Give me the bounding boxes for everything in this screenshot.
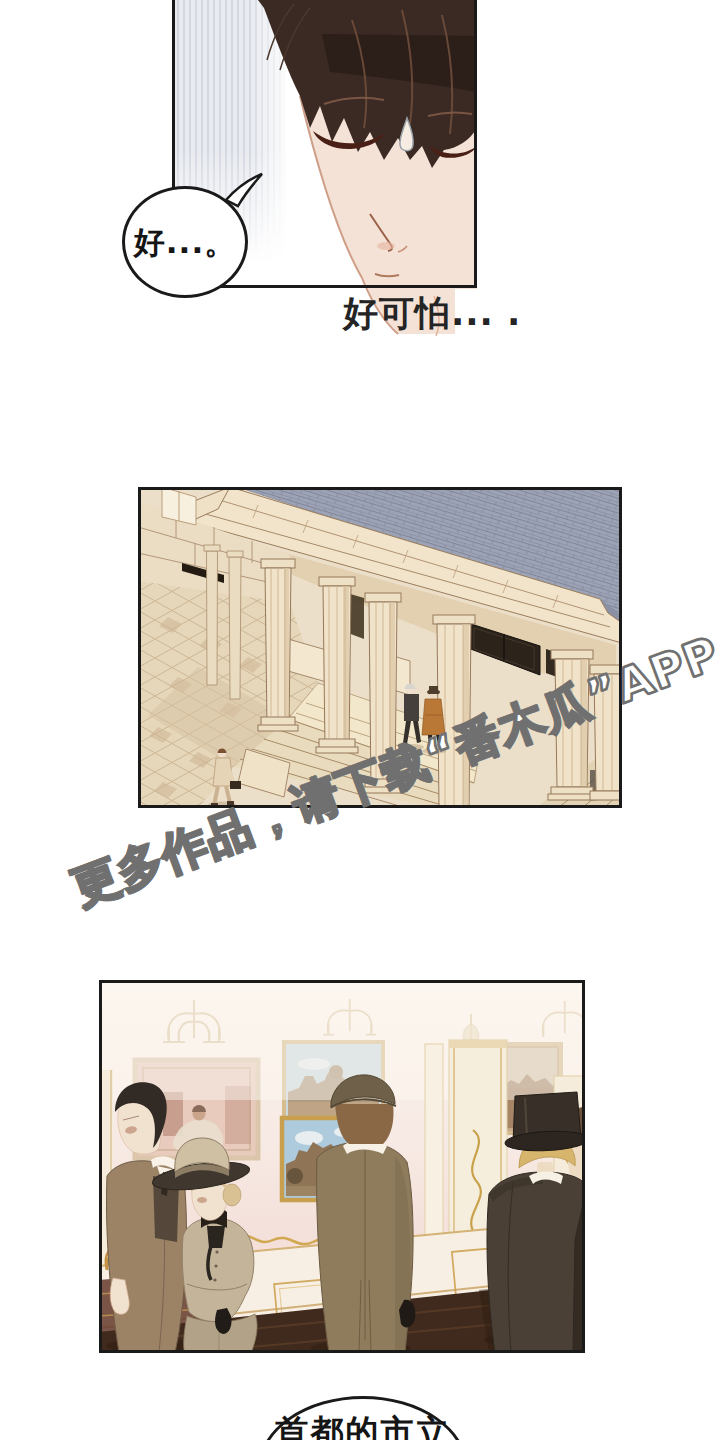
speech-bubble-tail <box>214 164 269 209</box>
gallery-artwork <box>99 980 585 1353</box>
speech-bubble-top-text: 好...。 <box>134 227 236 258</box>
speech-bubble-bottom: 首都的市立 <box>258 1396 468 1440</box>
webtoon-page: 好...。 好可怕... . <box>0 0 720 1440</box>
panel-gallery-interior <box>99 980 585 1353</box>
speech-bubble-bottom-text: 首都的市立 <box>276 1415 451 1440</box>
caption-scared-text: 好可怕... . <box>343 290 521 337</box>
